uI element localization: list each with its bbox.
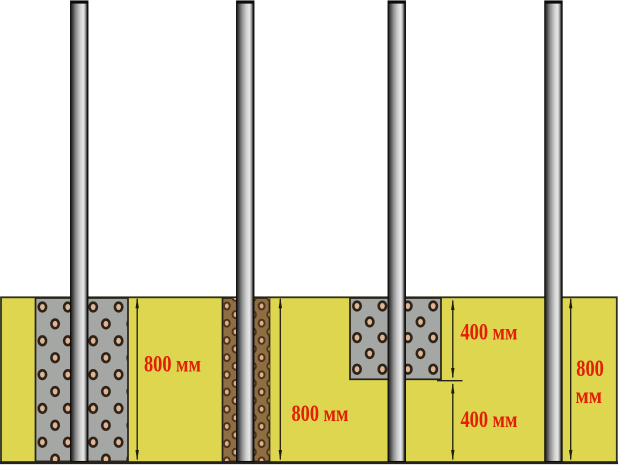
svg-text:400 мм: 400 мм: [461, 320, 518, 346]
svg-text:мм: мм: [576, 383, 603, 409]
svg-text:800 мм: 800 мм: [144, 352, 201, 378]
svg-text:400 мм: 400 мм: [461, 407, 518, 433]
svg-text:800: 800: [576, 356, 604, 382]
svg-text:800 мм: 800 мм: [292, 401, 349, 427]
